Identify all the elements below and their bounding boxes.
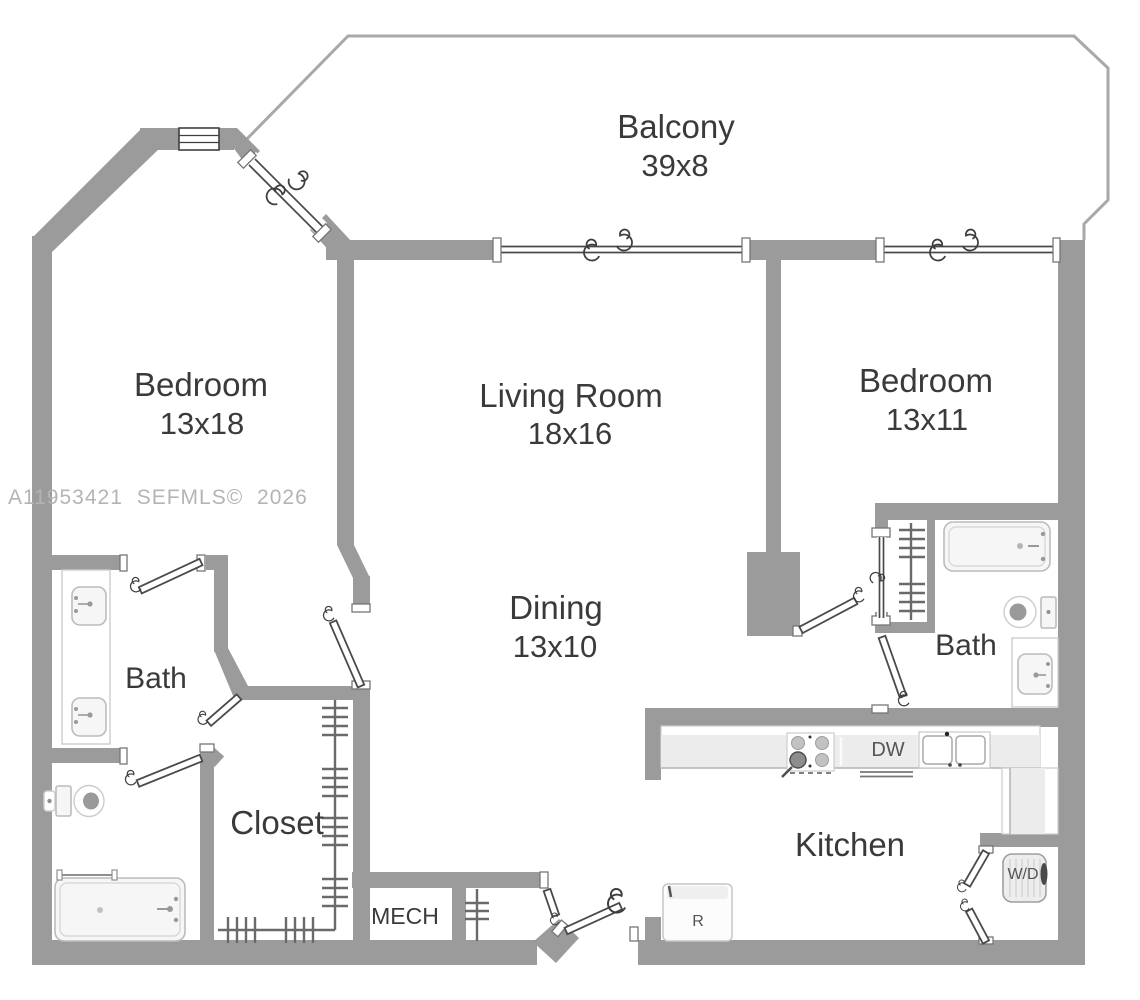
wall-bedroom-right-south [875,503,1058,520]
door-bath-left-vanity [130,559,202,594]
wall-living-divider-block [747,552,800,636]
refrigerator: R [663,884,732,941]
wall-left [32,236,52,965]
wall-bedroom-left-east [337,256,354,545]
wall-closet2-east [927,520,935,628]
sink-left-lower [72,698,106,736]
washer-dryer-label: W/D [1007,866,1038,883]
door-bedroom-right-hall [799,587,864,633]
label-living-room: Living Room [479,377,662,414]
closet-rod-bedroom-right [899,523,925,620]
vanity-right [1012,638,1058,707]
toilet-left [44,786,104,817]
wall-top-segment-b [742,240,876,260]
stove [782,733,834,777]
label-bath-left: Bath [125,662,187,695]
closet-rod-coat [465,889,489,941]
wall-bedroom-left-east-b [353,576,370,606]
sliding-door-bedroom-right [884,230,1053,261]
label-dining-dims: 13x10 [513,629,597,664]
kitchen-counter [661,726,1058,834]
door-laundry-upper [957,850,989,892]
wall-kitchen-top [645,708,1058,727]
wall-mech-top [352,872,548,888]
wall-closet-east [353,688,370,942]
wall-mech-divider [452,888,466,942]
closet-rod-main-horizontal [218,917,335,943]
wall-right [1058,240,1085,965]
label-bedroom-right: Bedroom [859,362,993,399]
label-closet: Closet [230,804,324,841]
window-bedroom-left [179,128,219,150]
bathtub-right [944,522,1050,571]
sink-left-upper [72,587,106,625]
glazing [179,128,1053,261]
door-closet-bedroom-right [870,537,886,618]
label-mech: MECH [371,903,439,929]
door-bedroom-left [323,606,364,687]
wall-laundry-alcove [980,833,1058,847]
door-bath-right [879,636,909,706]
floor-plan: R W/D DW Balcony 39x8 Bedroom 13x18 Livi… [0,0,1140,1000]
floor-plan-page: R W/D DW Balcony 39x8 Bedroom 13x18 Livi… [0,0,1140,1000]
closet-rod-main-vertical [322,700,348,930]
label-dining: Dining [509,589,603,626]
room-labels: Balcony 39x8 Bedroom 13x18 Living Room 1… [125,108,997,929]
label-bedroom-right-dims: 13x11 [886,402,968,437]
bath-right-fixtures [944,522,1058,707]
wall-closet-west [200,752,214,942]
door-toilet-room [125,755,202,787]
sliding-door-bedroom-left-balcony [238,150,331,242]
wall-bedroom-left-top-a [140,128,180,150]
wall-living-bedroom-divider [766,256,781,552]
wall-closet-top [234,686,367,700]
label-balcony: Balcony [617,108,735,145]
wall-bottom-right [638,940,1085,965]
label-kitchen: Kitchen [795,826,905,863]
toilet-right [1004,597,1056,629]
door-coat-closet [544,889,559,925]
wall-bedroom-left-jog [337,545,370,578]
wall-bath-left-east [214,570,228,652]
wall-bottom-left [32,940,537,965]
washer-dryer: W/D [1003,854,1048,902]
wall-toilet-room-top [52,748,120,763]
bathtub-left [55,878,185,941]
label-bedroom-left-dims: 13x18 [160,406,244,441]
label-balcony-dims: 39x8 [641,148,708,183]
door-entry [565,889,626,934]
wall-entry-stub [645,917,661,944]
refrigerator-label: R [692,913,704,930]
label-bedroom-left: Bedroom [134,366,268,403]
door-closet [198,694,241,726]
label-bath-right: Bath [935,629,997,662]
pass-bar [860,772,913,777]
wall-bath-left-top-b [206,555,228,570]
wall-kitchen-west-stub [645,708,661,780]
sliding-door-living [501,230,742,261]
watermark: A11953421 SEFMLS© 2026 [8,486,308,509]
wall-bath-left-top-a [52,555,120,570]
dishwasher-label: DW [871,739,904,761]
label-living-room-dims: 18x16 [528,416,612,451]
kitchen-sink [919,732,990,768]
door-laundry-lower [960,899,989,944]
